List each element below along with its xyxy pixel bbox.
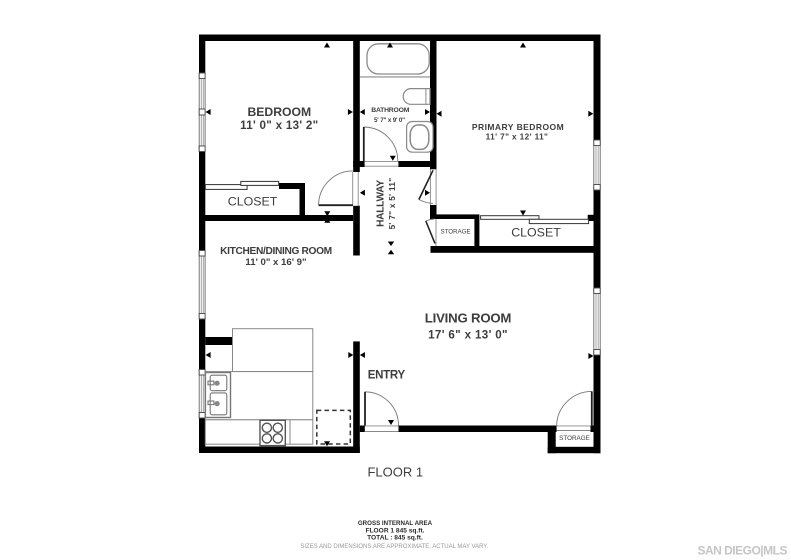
svg-text:FLOOR 1: FLOOR 1	[367, 465, 423, 480]
svg-text:CLOSET: CLOSET	[511, 226, 561, 240]
svg-text:STORAGE: STORAGE	[441, 229, 471, 236]
svg-text:CLOSET: CLOSET	[228, 195, 278, 209]
svg-text:PRIMARY BEDROOM: PRIMARY BEDROOM	[472, 122, 564, 132]
svg-text:GROSS INTERNAL AREA: GROSS INTERNAL AREA	[358, 520, 433, 527]
svg-text:5' 7" x 5' 11": 5' 7" x 5' 11"	[388, 178, 397, 230]
svg-text:LIVING ROOM: LIVING ROOM	[425, 311, 512, 326]
svg-text:FLOOR 1 845 sq.ft.: FLOOR 1 845 sq.ft.	[366, 528, 425, 535]
svg-text:KITCHEN/DINING ROOM: KITCHEN/DINING ROOM	[220, 246, 332, 257]
svg-text:ENTRY: ENTRY	[368, 369, 406, 381]
svg-text:TOTAL : 845 sq.ft.: TOTAL : 845 sq.ft.	[367, 535, 423, 542]
svg-text:SAN DIEGO|MLS: SAN DIEGO|MLS	[697, 544, 787, 558]
svg-text:BATHROOM: BATHROOM	[371, 107, 409, 114]
svg-text:STORAGE: STORAGE	[559, 435, 590, 442]
svg-text:11' 0" x 16' 9": 11' 0" x 16' 9"	[245, 257, 306, 268]
svg-text:5' 7" x 9' 0": 5' 7" x 9' 0"	[374, 117, 405, 124]
svg-text:BEDROOM: BEDROOM	[247, 105, 311, 119]
svg-text:SIZES AND DIMENSIONS ARE APPRO: SIZES AND DIMENSIONS ARE APPROXIMATE, AC…	[300, 544, 488, 550]
svg-text:17' 6" x 13' 0": 17' 6" x 13' 0"	[428, 328, 508, 341]
svg-text:11' 0" x 13' 2": 11' 0" x 13' 2"	[240, 119, 318, 132]
svg-text:HALLWAY: HALLWAY	[376, 180, 387, 227]
svg-text:11' 7" x 12' 11": 11' 7" x 12' 11"	[486, 132, 549, 141]
